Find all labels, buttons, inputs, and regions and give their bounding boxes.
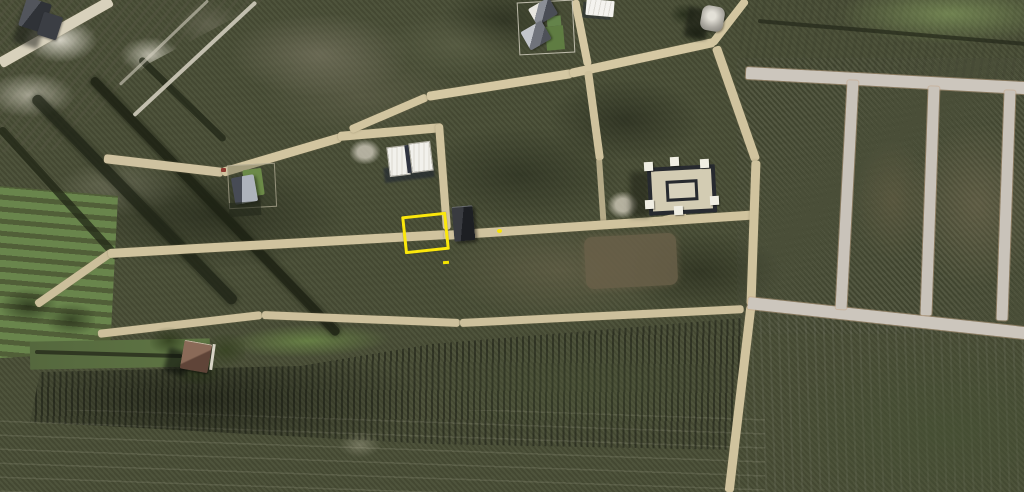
feature-layer — [0, 0, 1024, 492]
construction-pillar-5 — [674, 206, 683, 215]
construction-pillar-4 — [710, 196, 719, 205]
house-west-garden — [229, 201, 262, 217]
bare-patch-mid — [584, 233, 679, 290]
house-west-roof — [231, 174, 258, 205]
yellow-marker-dot — [497, 229, 502, 233]
dark-shed-by-parcel — [452, 205, 476, 242]
construction-pillar-2 — [670, 157, 679, 166]
construction-pillar-6 — [645, 200, 654, 209]
parcel-highlight[interactable] — [401, 212, 450, 254]
house-west-car — [221, 168, 226, 172]
house-bottomleft-roof — [180, 340, 213, 373]
construction-pillar-1 — [644, 162, 653, 171]
construction-pillar-3 — [700, 159, 709, 168]
yellow-marker-dash — [443, 261, 449, 265]
satellite-map-canvas[interactable] — [0, 0, 1024, 492]
rubble-patch-1 — [350, 140, 380, 164]
construction-inner-court — [665, 179, 698, 202]
twin-shed-right — [408, 141, 433, 173]
white-building-top — [585, 0, 614, 17]
